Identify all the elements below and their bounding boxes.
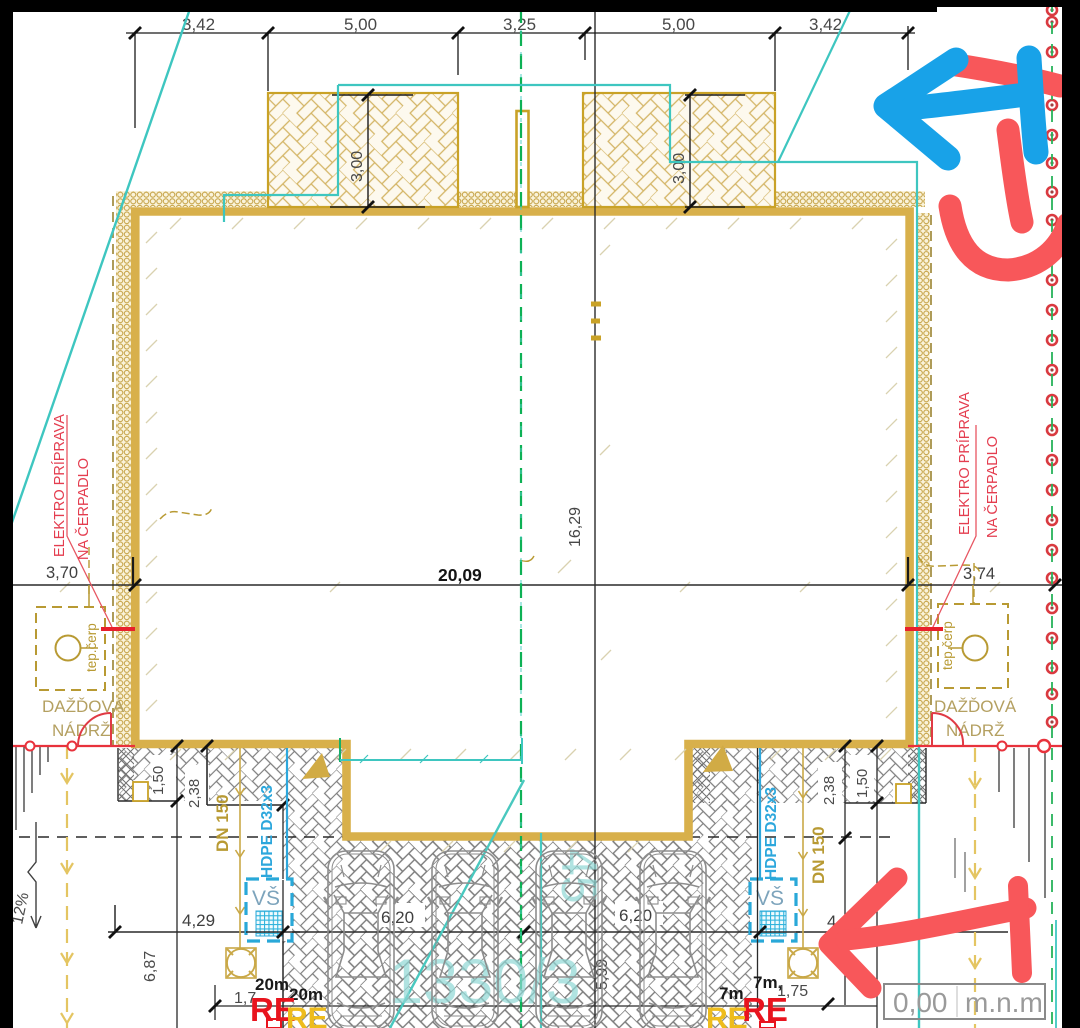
svg-text:ELEKTRO PRÍPRAVA: ELEKTRO PRÍPRAVA — [51, 414, 68, 557]
svg-text:1,50: 1,50 — [854, 769, 871, 798]
svg-text:DAŽĎOVÁ: DAŽĎOVÁ — [934, 697, 1017, 716]
svg-text:DN 150: DN 150 — [213, 794, 232, 852]
svg-text:4,29: 4,29 — [182, 911, 215, 930]
svg-text:3,00: 3,00 — [671, 153, 688, 184]
svg-text:ELEKTRO PRÍPRAVA: ELEKTRO PRÍPRAVA — [956, 392, 973, 535]
svg-text:m.n.m: m.n.m — [965, 987, 1043, 1018]
svg-text:3,25: 3,25 — [503, 15, 536, 34]
svg-text:DAŽĎOVÁ: DAŽĎOVÁ — [42, 697, 125, 716]
svg-text:HDPE D32x3: HDPE D32x3 — [763, 787, 780, 880]
svg-text:5,00: 5,00 — [662, 15, 695, 34]
svg-text:0,00: 0,00 — [893, 987, 948, 1018]
svg-text:7m: 7m — [719, 984, 744, 1003]
svg-text:RE: RE — [286, 1002, 328, 1028]
svg-text:VŠ: VŠ — [252, 887, 280, 910]
svg-text:tep.čerp: tep.čerp — [84, 623, 99, 672]
svg-text:6,87: 6,87 — [142, 951, 159, 982]
svg-text:45: 45 — [551, 848, 607, 904]
svg-text:6,20: 6,20 — [619, 906, 652, 925]
svg-text:HDPE D32x3: HDPE D32x3 — [259, 785, 276, 878]
svg-text:NA ČERPADLO: NA ČERPADLO — [984, 436, 1001, 538]
svg-text:2,38: 2,38 — [821, 776, 838, 805]
svg-text:3,74: 3,74 — [963, 565, 995, 583]
svg-text:VŠ: VŠ — [756, 887, 784, 910]
svg-text:3,00: 3,00 — [349, 151, 366, 182]
svg-text:6,20: 6,20 — [381, 908, 414, 927]
svg-text:5,00: 5,00 — [344, 15, 377, 34]
svg-text:3,70: 3,70 — [46, 564, 78, 582]
svg-text:RE: RE — [706, 1002, 748, 1028]
svg-text:2,38: 2,38 — [186, 779, 203, 808]
svg-text:DN 150: DN 150 — [809, 826, 828, 884]
svg-text:NA ČERPADLO: NA ČERPADLO — [75, 458, 92, 560]
svg-text:16,29: 16,29 — [567, 507, 584, 547]
svg-text:1,50: 1,50 — [150, 766, 167, 795]
svg-text:3,42: 3,42 — [809, 15, 842, 34]
svg-text:20,09: 20,09 — [438, 565, 482, 585]
